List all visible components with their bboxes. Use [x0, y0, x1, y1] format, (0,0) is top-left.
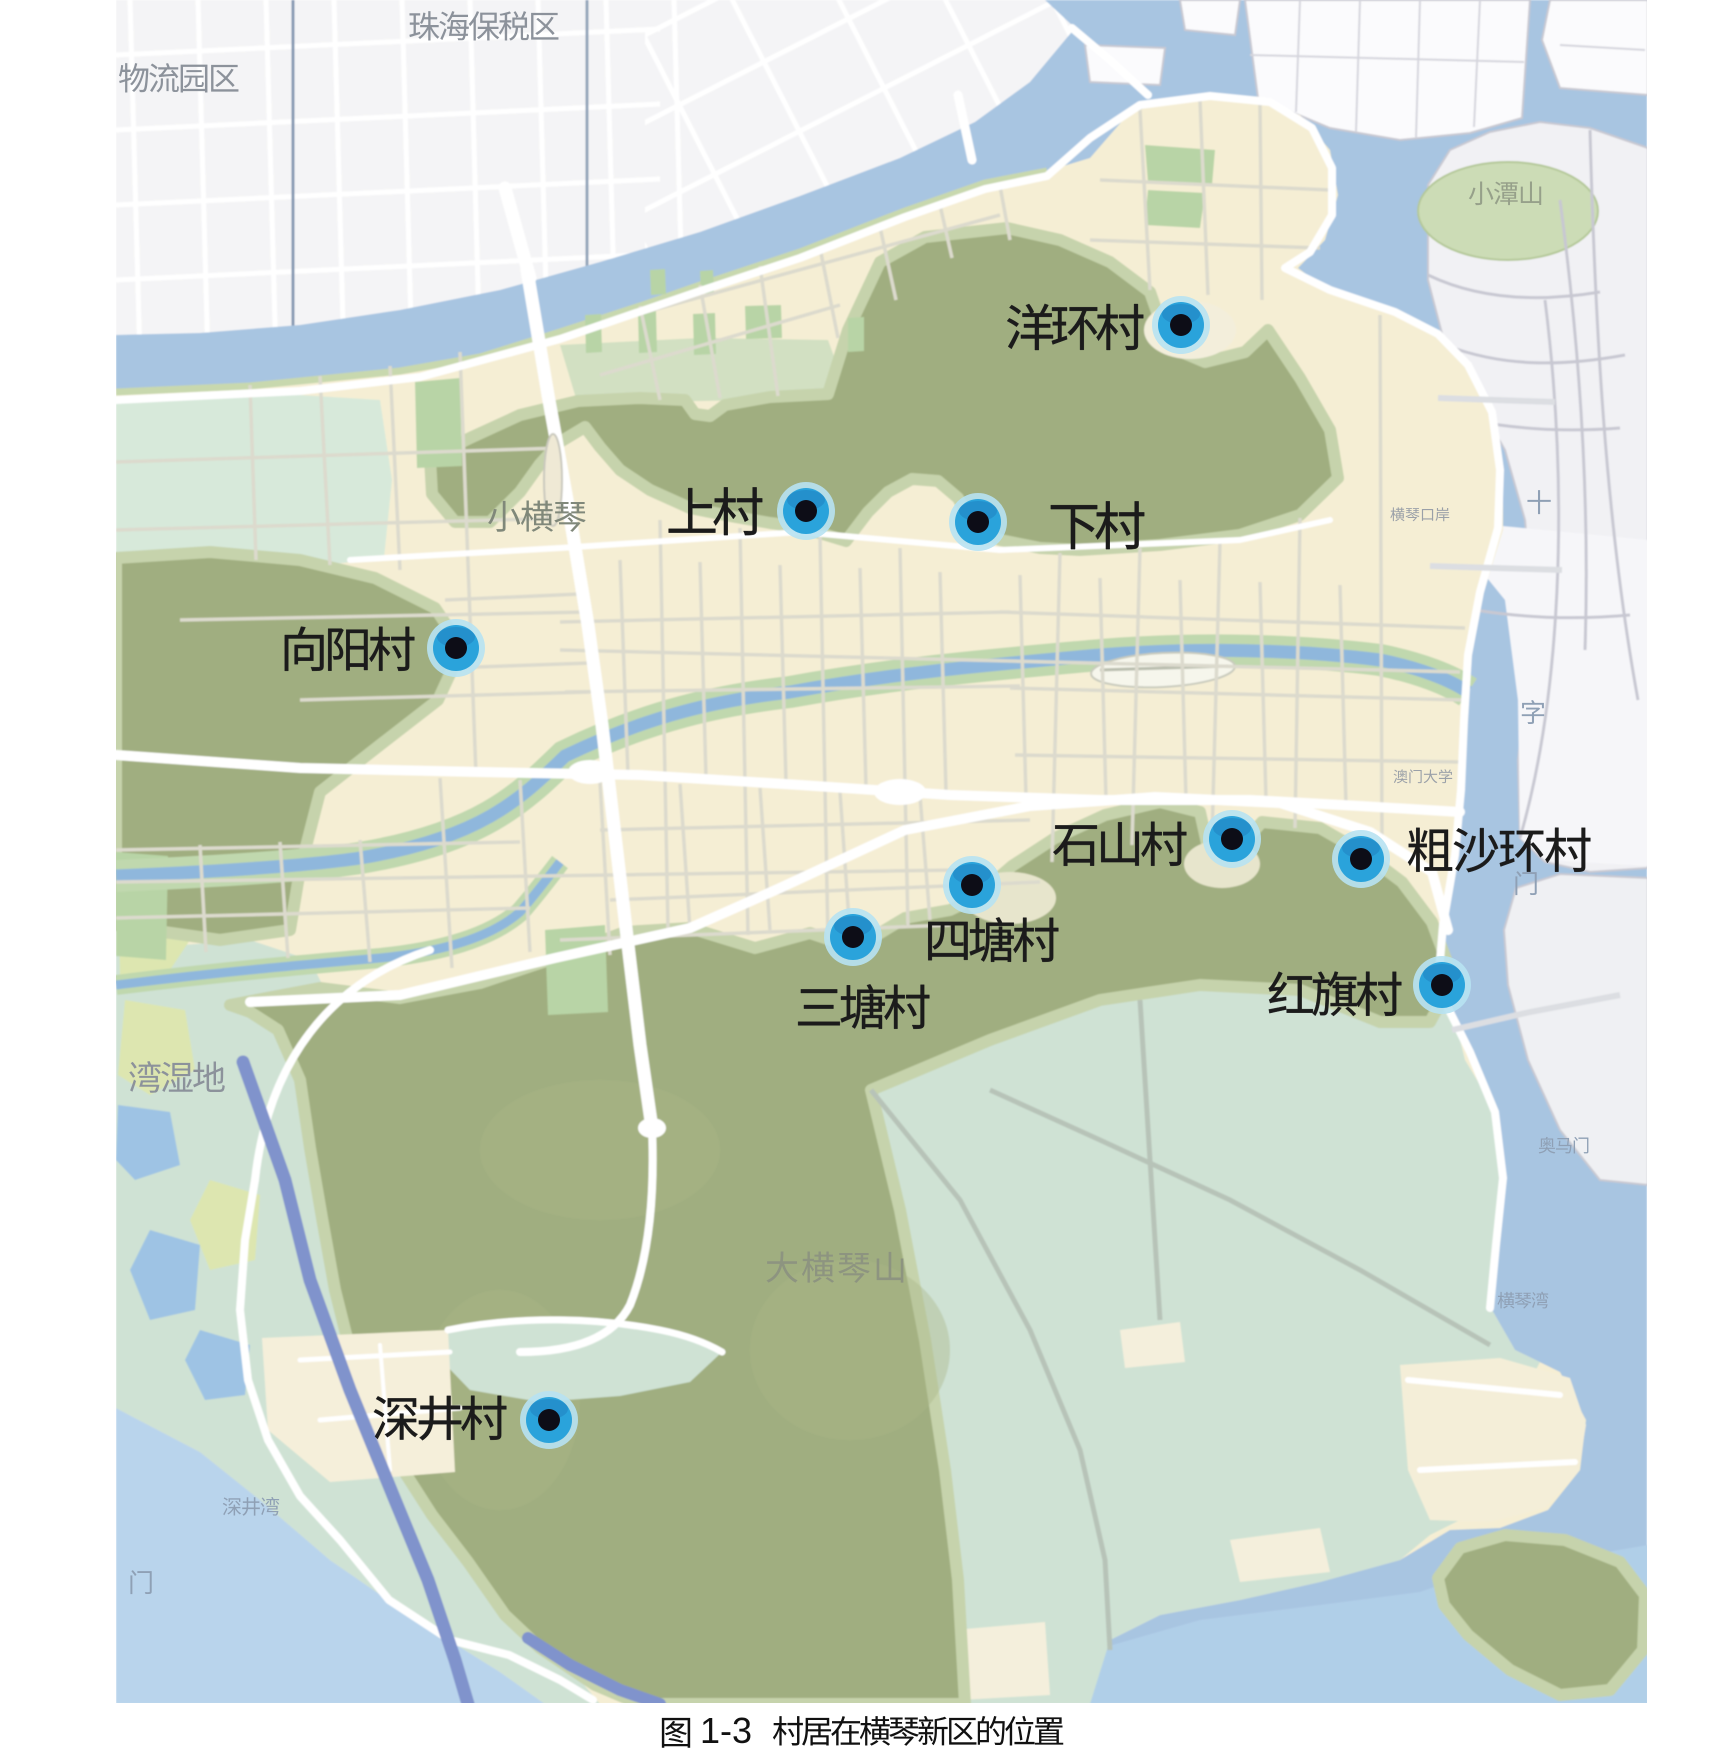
svg-text:1-3: 1-3: [700, 1710, 752, 1751]
